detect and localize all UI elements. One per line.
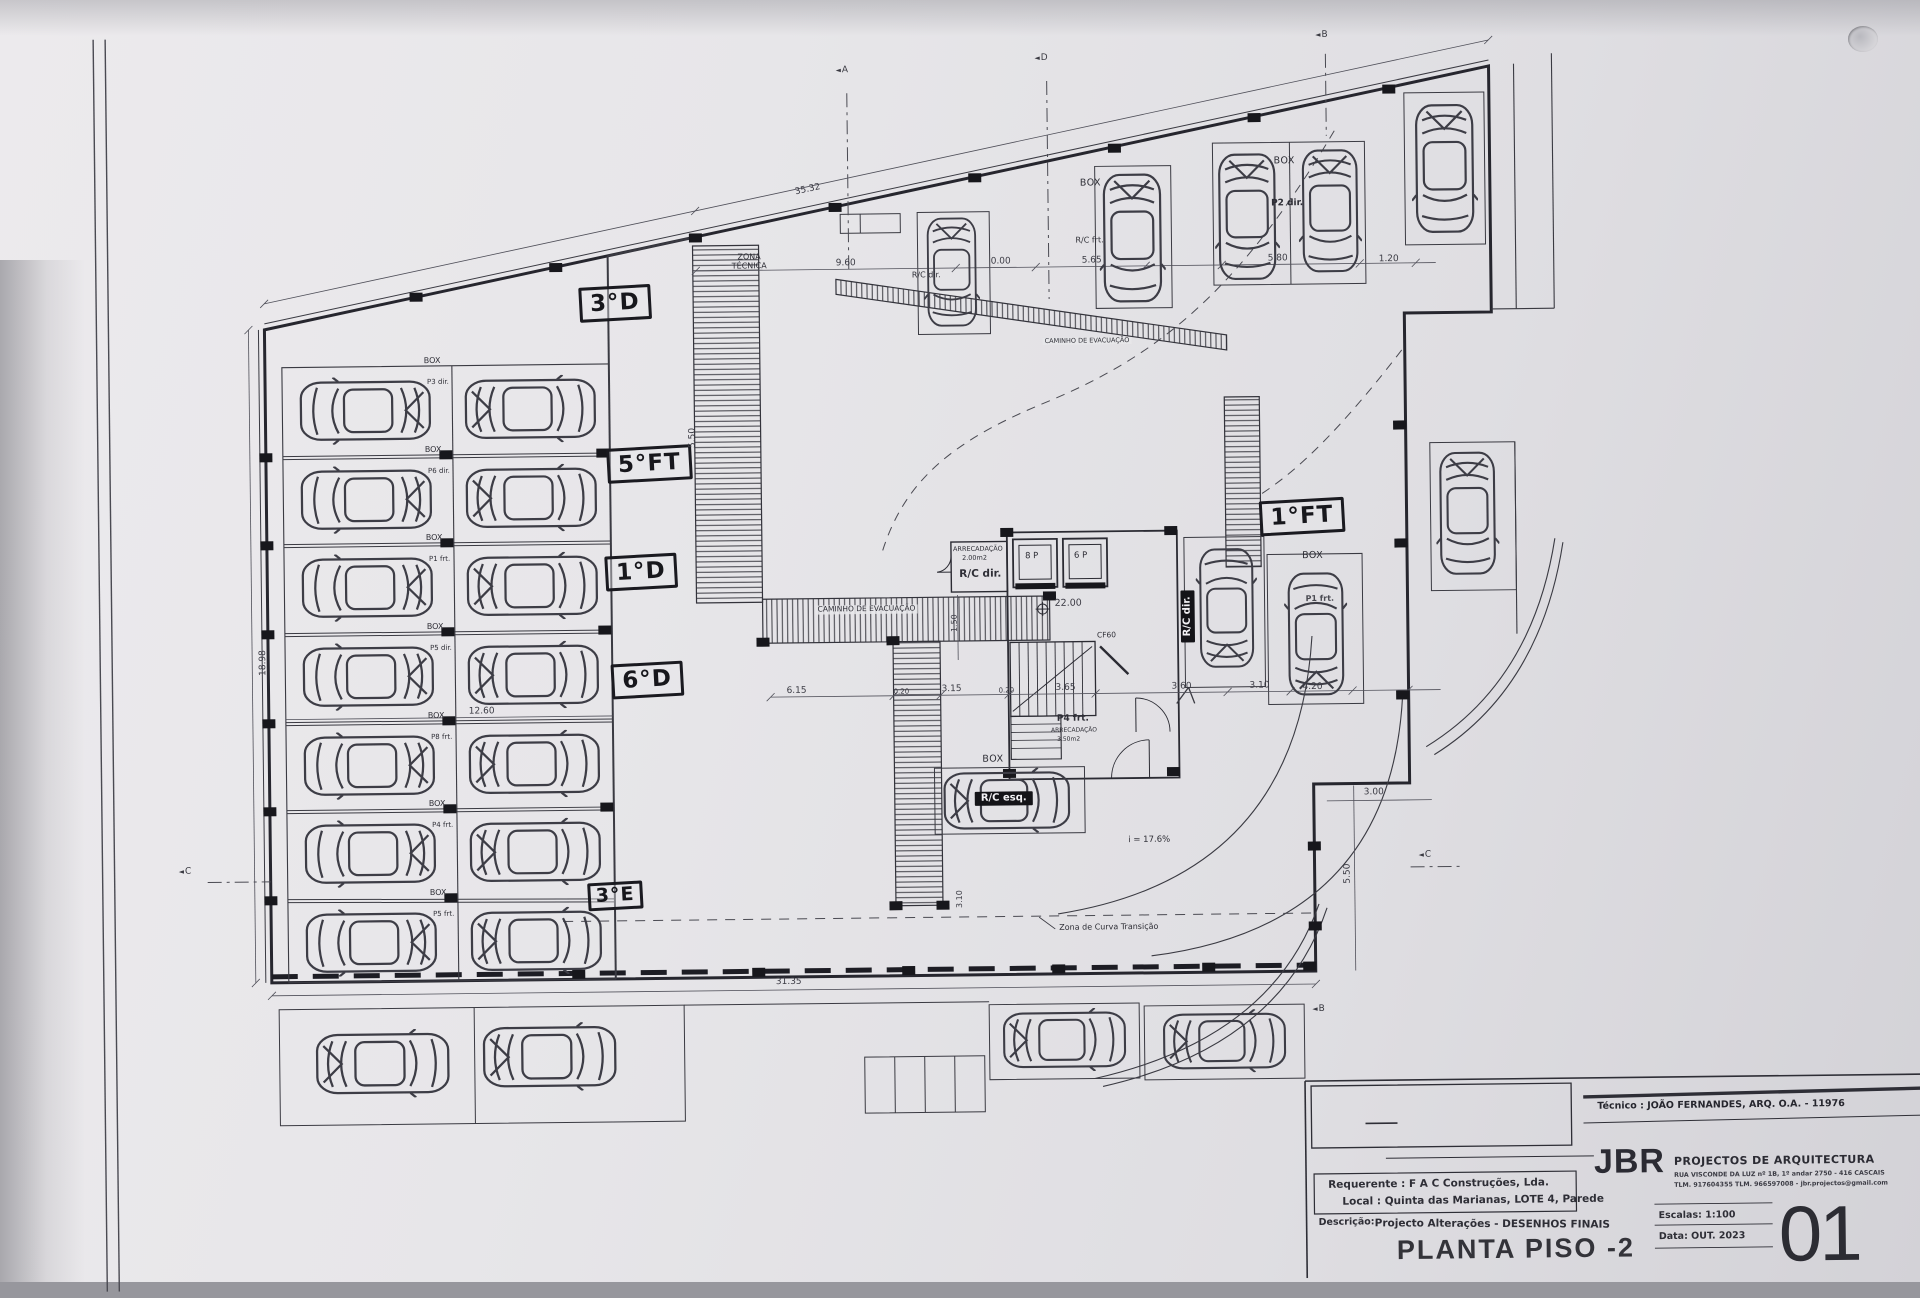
- p1-frt-label: P1 frt.: [1305, 594, 1334, 604]
- structural-column: [1164, 526, 1177, 535]
- caminho-evacuacao-label-2: CAMINHO DE EVACUAÇÃO: [1043, 337, 1132, 345]
- structural-column: [1248, 113, 1261, 122]
- dim-12-60: 12.60: [469, 706, 495, 717]
- section-marker-b-bottom: B: [1312, 1004, 1325, 1014]
- dim-0-20a: 0.20: [894, 688, 910, 696]
- structural-column: [1108, 144, 1121, 153]
- row4-box-label: BOX: [427, 622, 444, 631]
- car-top-view: [1099, 174, 1166, 301]
- photo-shadow-left: [0, 260, 85, 1282]
- structural-column: [936, 901, 949, 910]
- structural-column: [1309, 921, 1322, 930]
- car-top-view: [468, 552, 598, 621]
- car-top-view: [469, 641, 599, 710]
- car-top-view: [470, 730, 600, 799]
- structural-column: [259, 453, 272, 462]
- handwritten-label-3e: 3°E: [587, 880, 643, 911]
- row2-stall-label: P6 dir.: [428, 467, 450, 475]
- dim-31-35: 31.35: [776, 977, 802, 988]
- rc-esq-label: R/C esq.: [975, 791, 1033, 805]
- car-top-view: [317, 1029, 449, 1099]
- structural-column: [829, 203, 842, 212]
- arrecadacao1-room: R/C dir.: [959, 568, 1001, 581]
- structural-column: [752, 968, 765, 977]
- row1-box-label: BOX: [424, 356, 441, 365]
- cf60-label: CF60: [1097, 631, 1116, 640]
- dim-3-65: 3.65: [1055, 683, 1075, 694]
- slope-label: i = 17.6%: [1128, 836, 1170, 846]
- arrecadacao2-title: ARRECADAÇÃO: [1051, 727, 1097, 734]
- car-top-view: [484, 1022, 616, 1092]
- section-marker-c-left: C: [179, 867, 192, 877]
- left-parking-block: [280, 237, 703, 983]
- photo-shadow-top: [0, 0, 1920, 36]
- dim-4-20: 4.20: [1302, 682, 1322, 693]
- dim-9-60: 9.60: [836, 258, 856, 269]
- structural-column: [1303, 961, 1316, 970]
- titleblock-firm-tag: PROJECTOS DE ARQUITECTURA: [1674, 1153, 1875, 1168]
- leader-lines: [1039, 917, 1055, 929]
- titleblock-plan-title: PLANTA PISO -2: [1397, 1232, 1635, 1266]
- structural-column: [410, 293, 423, 302]
- structural-column: [261, 630, 274, 639]
- row4-stall-label: P5 dir.: [430, 644, 452, 652]
- handwritten-label-6d: 6°D: [611, 661, 684, 700]
- dim-5-50-left: 5.50: [688, 428, 699, 448]
- row5-stall-label: P8 frt.: [431, 733, 452, 741]
- car-top-view: [304, 642, 434, 711]
- box-top2-label: BOX: [1274, 156, 1295, 167]
- structural-column: [262, 719, 275, 728]
- car-top-view: [301, 376, 431, 445]
- box-esq-label: BOX: [982, 755, 1003, 766]
- dim-5-80: 5.80: [1268, 253, 1288, 264]
- car-top-view: [1411, 105, 1478, 232]
- section-marker-c-right: C: [1418, 850, 1431, 860]
- arrecadacao2-area: 3.50m2: [1057, 737, 1080, 744]
- titleblock-requerente: Requerente : F A C Construções, Lda.: [1328, 1176, 1549, 1191]
- row2-box-label: BOX: [425, 445, 442, 454]
- dim-5-50-right: 5.50: [1343, 864, 1354, 884]
- handwritten-label-1ft: 1°FT: [1259, 497, 1346, 537]
- structural-column: [600, 802, 613, 811]
- row3-box-label: BOX: [426, 533, 443, 542]
- caminho-evacuacao-label-1: CAMINHO DE EVACUAÇÃO: [816, 604, 918, 614]
- row3-stall-label: P1 frt.: [429, 555, 450, 563]
- car-top-view: [471, 818, 601, 887]
- photo-of-architectural-drawing: { "titleblock": { "tecnico": "Técnico : …: [0, 0, 1920, 1282]
- rc-dir-stall-label: R/C dir.: [1180, 590, 1194, 642]
- structural-column: [1396, 690, 1409, 699]
- structural-column: [1202, 963, 1215, 972]
- structural-column: [1308, 841, 1321, 850]
- sheet-frame: [93, 40, 119, 1292]
- box-right-label: BOX: [1302, 551, 1323, 562]
- row7-box-label: BOX: [430, 888, 447, 897]
- dim-1-50: 1.50: [950, 614, 959, 632]
- p2-dir-label: P2 dir.: [1271, 198, 1303, 209]
- dim-3-10: 3.10: [1249, 680, 1269, 691]
- structural-column: [263, 807, 276, 816]
- car-top-view: [1284, 573, 1348, 694]
- paper-punch-hole: [1848, 26, 1878, 52]
- dim-3-15: 3.15: [941, 684, 961, 695]
- car-top-view: [305, 731, 435, 800]
- car-top-view: [307, 908, 437, 977]
- handwritten-label-3d: 3°D: [578, 284, 651, 323]
- titleblock-escalas: Escalas: 1:100: [1659, 1209, 1736, 1221]
- row7-stall-label: P5 frt.: [433, 910, 454, 918]
- floor-plan-linework: [0, 0, 1920, 1293]
- rc-dir-top-label: R/C dir.: [912, 270, 941, 280]
- structural-column: [1394, 538, 1407, 547]
- structural-column: [886, 636, 899, 645]
- dim-1-20: 1.20: [1379, 254, 1399, 265]
- curva-transicao-label: Zona de Curva Transição: [1059, 922, 1158, 932]
- row6-box-label: BOX: [429, 799, 446, 808]
- structural-column: [264, 896, 277, 905]
- arrecadacao1-area: 2.00m2: [962, 555, 987, 563]
- structural-column: [1382, 85, 1395, 94]
- car-top-view: [1004, 1008, 1125, 1072]
- row6-stall-label: P4 frt.: [432, 821, 453, 829]
- structural-column: [968, 173, 981, 182]
- structural-column: [1393, 420, 1406, 429]
- rc-frt-label: R/C frt.: [1075, 235, 1103, 245]
- handwritten-label-5ft: 5°FT: [606, 444, 693, 484]
- dim-0-20b: 0.20: [999, 686, 1015, 694]
- structural-column: [598, 625, 611, 634]
- car-top-view: [1164, 1009, 1285, 1073]
- p4-frt-label: P4 frt.: [1057, 714, 1089, 725]
- car-top-view: [306, 819, 436, 888]
- dim-6-15: 6.15: [786, 686, 806, 697]
- car-top-view: [466, 375, 596, 444]
- car-top-view: [302, 465, 432, 534]
- level-22-00: 22.00: [1055, 599, 1082, 610]
- titleblock-descricao: Projecto Alterações - DESENHOS FINAIS: [1375, 1217, 1610, 1230]
- section-marker-a: A: [835, 65, 848, 75]
- structural-column: [889, 901, 902, 910]
- titleblock-descricao-label: Descrição:: [1319, 1216, 1375, 1228]
- structural-column: [756, 638, 769, 647]
- car-top-view: [1435, 453, 1499, 574]
- structural-column: [1052, 964, 1065, 973]
- structural-column: [1000, 528, 1013, 537]
- structural-column: [260, 541, 273, 550]
- row5-box-label: BOX: [428, 711, 445, 720]
- dim-3-10-vert: 3.10: [955, 890, 964, 908]
- arrecadacao1-title: ARRECADAÇÃO: [953, 546, 1003, 554]
- section-marker-d: D: [1034, 53, 1047, 63]
- titleblock-data: Data: OUT. 2023: [1659, 1230, 1746, 1242]
- car-top-view: [472, 906, 602, 975]
- lift-6p-label: 6 P: [1074, 552, 1087, 562]
- car-top-view: [1298, 150, 1362, 271]
- car-top-view: [467, 464, 597, 533]
- titleblock-firm-logo: JBR: [1594, 1144, 1665, 1179]
- dim-3-60: 3.60: [1171, 681, 1191, 692]
- box-top1-label: BOX: [1080, 178, 1101, 189]
- dim-0-00: 0.00: [991, 256, 1011, 267]
- structural-column: [1167, 767, 1180, 776]
- handwritten-label-1d: 1°D: [604, 553, 677, 592]
- structural-column: [689, 233, 702, 242]
- structural-column: [902, 966, 915, 975]
- row1-stall-label: P3 dir.: [427, 378, 449, 386]
- lift-8p-label: 8 P: [1025, 552, 1038, 562]
- zona-tecnica-label: ZONA TÉCNICA: [732, 252, 767, 271]
- structural-column: [572, 970, 585, 979]
- structural-column: [549, 263, 562, 272]
- titleblock-sheet-number: 01: [1778, 1194, 1860, 1273]
- drawing-area: 3°D 5°FT 1°D 6°D 3°E 1°FT ZONA TÉCNICA C…: [0, 0, 1920, 1293]
- dim-3-00: 3.00: [1364, 787, 1384, 798]
- car-top-view: [303, 553, 433, 622]
- dim-5-65: 5.65: [1082, 255, 1102, 266]
- dim-18-98: 18.98: [258, 650, 269, 676]
